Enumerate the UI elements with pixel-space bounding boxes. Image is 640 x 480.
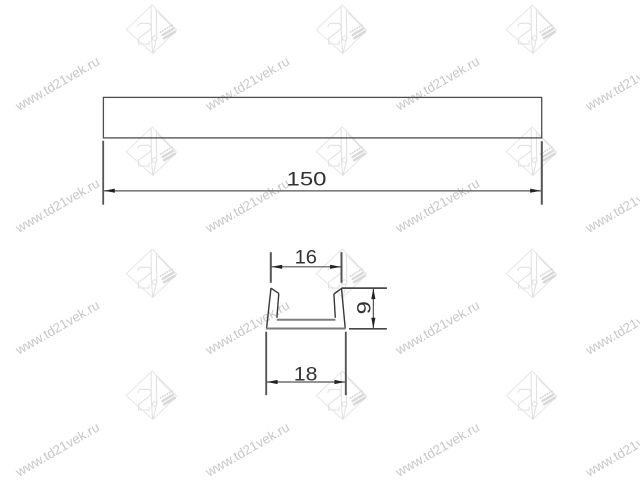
- svg-text:www.td21vek.ru: www.td21vek.ru: [392, 54, 482, 115]
- svg-text:www.td21vek.ru: www.td21vek.ru: [202, 54, 292, 115]
- svg-text:9: 9: [354, 301, 375, 314]
- svg-text:www.td21vek.ru: www.td21vek.ru: [12, 298, 102, 359]
- svg-text:www.td21vek.ru: www.td21vek.ru: [582, 54, 640, 115]
- svg-text:www.td21vek.ru: www.td21vek.ru: [392, 176, 482, 237]
- svg-text:www.td21vek.ru: www.td21vek.ru: [12, 420, 102, 480]
- svg-text:www.td21vek.ru: www.td21vek.ru: [392, 298, 482, 359]
- svg-text:www.td21vek.ru: www.td21vek.ru: [202, 176, 292, 237]
- svg-text:www.td21vek.ru: www.td21vek.ru: [202, 420, 292, 480]
- svg-text:www.td21vek.ru: www.td21vek.ru: [582, 298, 640, 359]
- svg-text:16: 16: [295, 247, 318, 268]
- svg-text:18: 18: [294, 365, 318, 386]
- svg-text:www.td21vek.ru: www.td21vek.ru: [392, 420, 482, 480]
- svg-text:www.td21vek.ru: www.td21vek.ru: [582, 176, 640, 237]
- svg-text:www.td21vek.ru: www.td21vek.ru: [582, 420, 640, 480]
- svg-text:150: 150: [287, 168, 327, 190]
- svg-text:www.td21vek.ru: www.td21vek.ru: [12, 54, 102, 115]
- svg-text:www.td21vek.ru: www.td21vek.ru: [12, 176, 102, 237]
